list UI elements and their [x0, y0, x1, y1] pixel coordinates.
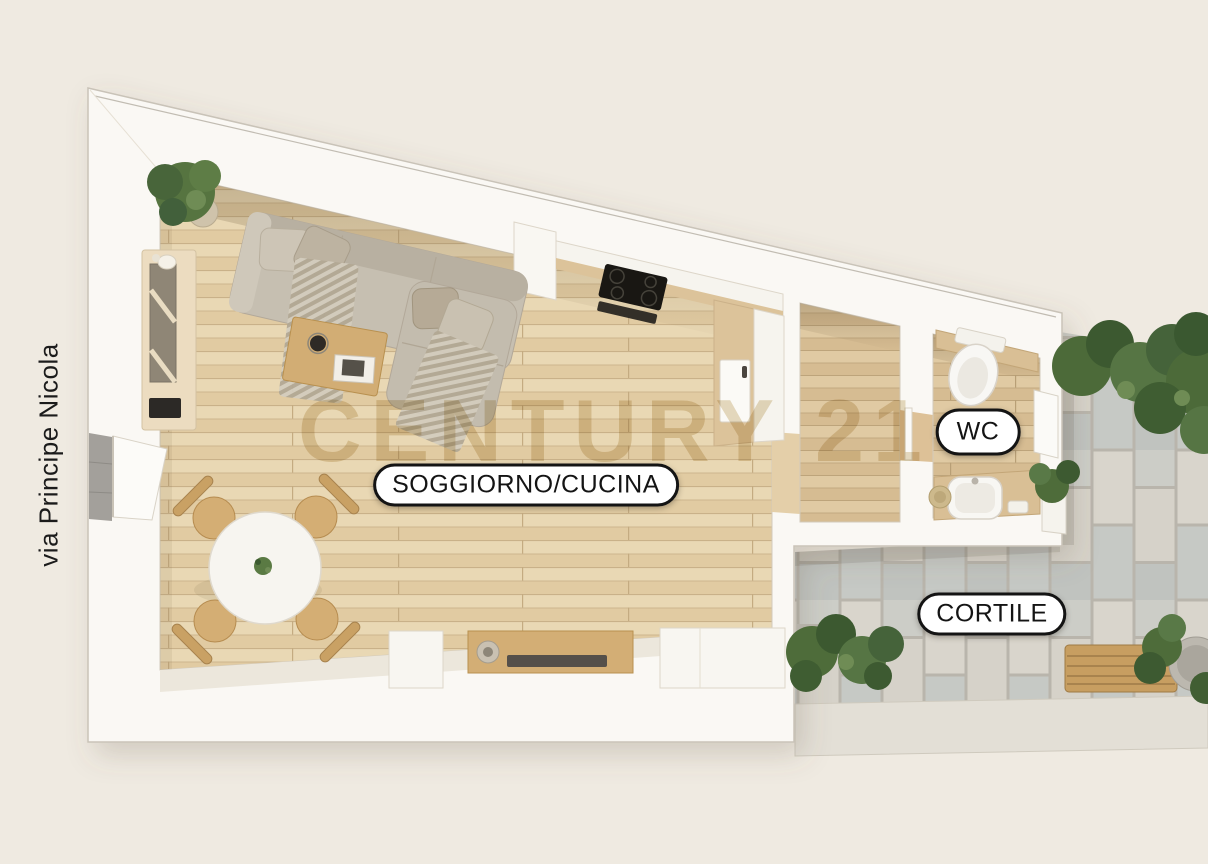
media-device	[149, 398, 181, 418]
tray	[1008, 501, 1028, 513]
street-name-label: via Principe Nicola	[34, 343, 65, 566]
wc-courtyard-door	[1034, 390, 1058, 458]
vase	[158, 255, 176, 269]
fridge-handle	[742, 366, 747, 378]
room-label-soggiorno-cucina: SOGGIORNO/CUCINA	[373, 464, 679, 507]
floorplan-scene: via Principe Nicola CENTURY 21 SOGGIORNO…	[0, 0, 1208, 864]
room-label-cortile: CORTILE	[917, 593, 1066, 636]
storage-box	[389, 631, 443, 688]
room-label-wc: WC	[936, 409, 1021, 456]
door-mat	[89, 433, 112, 521]
faucet	[972, 478, 979, 485]
tv-cabinet	[142, 250, 196, 430]
storage-box	[660, 628, 785, 688]
courtyard-curb	[795, 696, 1208, 756]
soundbar	[507, 655, 607, 667]
bathroom-vanity	[929, 470, 1040, 520]
